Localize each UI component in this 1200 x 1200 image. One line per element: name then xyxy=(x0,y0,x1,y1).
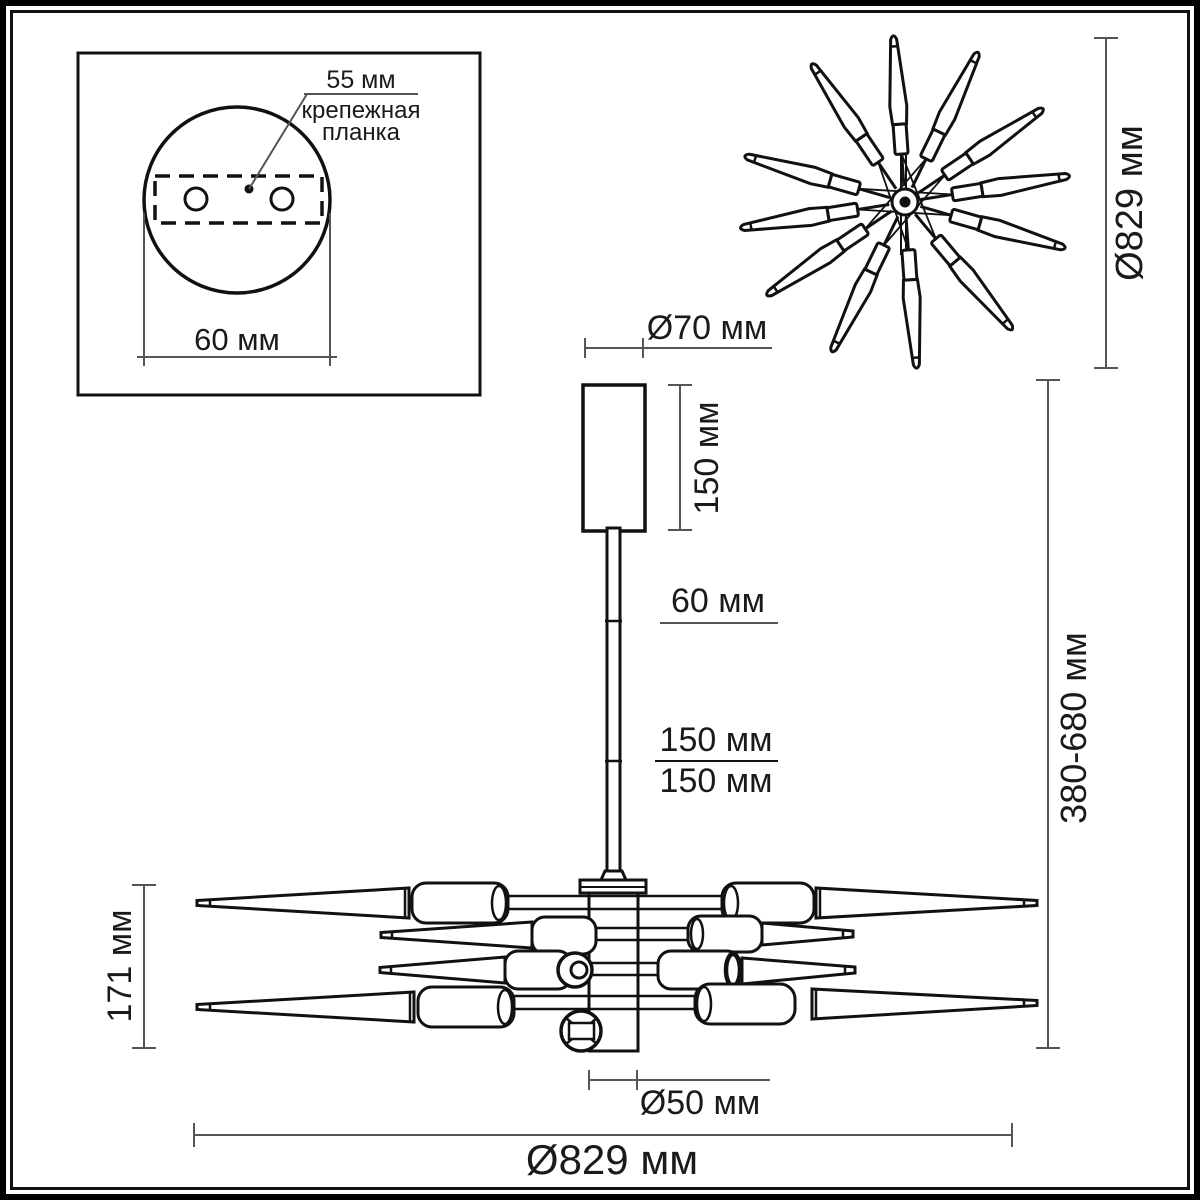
stem-rod xyxy=(607,528,620,878)
height-range-label: 380-680 мм xyxy=(1053,632,1094,824)
hub-center-dot xyxy=(900,197,911,208)
plate-width-label: 60 мм xyxy=(194,322,280,357)
hub-diameter-label: Ø50 мм xyxy=(640,1084,760,1122)
plate-offset-label: 55 мм xyxy=(326,66,395,94)
arms-height-label: 171 мм xyxy=(101,910,139,1023)
spike-right-4 xyxy=(812,989,1037,1019)
spike-left-2 xyxy=(381,922,532,948)
spike-left-3 xyxy=(380,957,505,983)
spike-left-4 xyxy=(197,992,414,1022)
side-view xyxy=(197,385,1037,1051)
finial-knob xyxy=(561,1011,601,1051)
stem-segment-label: 60 мм xyxy=(671,582,765,620)
socket-end-on xyxy=(558,953,592,987)
technical-drawing-page: { "detail": { "offset": "55 мм", "plate_… xyxy=(0,0,1200,1200)
mounting-plate-detail: 55 мм крепежная планка 60 мм xyxy=(78,53,480,395)
top-view: Ø829 мм xyxy=(739,35,1151,368)
starburst xyxy=(739,35,1071,368)
canopy-height-label: 150 мм xyxy=(688,402,726,515)
canopy-diameter-label: Ø70 мм xyxy=(647,309,767,347)
plate-name-line2: планка xyxy=(322,119,401,146)
spike-left-1 xyxy=(197,888,409,918)
top-view-diameter-label: Ø829 мм xyxy=(1109,125,1151,281)
rod-segment2-label: 150 мм xyxy=(660,762,773,800)
spike-right-2 xyxy=(762,923,853,945)
ceiling-cup xyxy=(583,385,645,531)
socket-left-2 xyxy=(532,917,596,954)
spike-right-3 xyxy=(742,958,855,984)
spike-right-1 xyxy=(816,888,1037,918)
fixture-diameter-label: Ø829 мм xyxy=(526,1136,698,1183)
rod-segment1-label: 150 мм xyxy=(660,721,773,759)
drawing-canvas: 55 мм крепежная планка 60 мм xyxy=(0,0,1200,1200)
